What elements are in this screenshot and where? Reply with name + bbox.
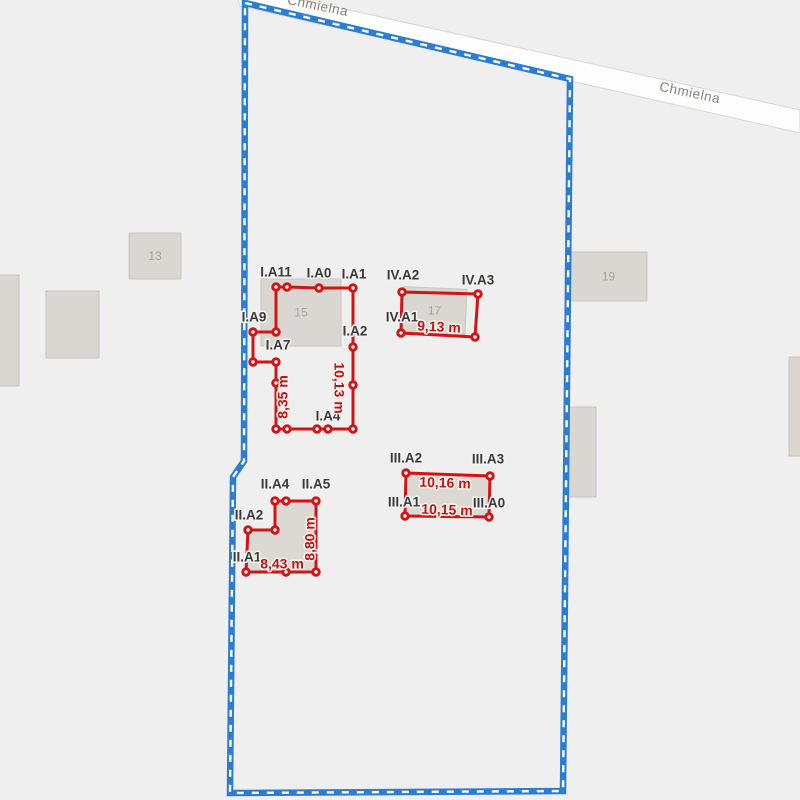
vertex-marker[interactable]: [402, 513, 408, 519]
map-svg: ChmielnaChmielna13151719I.A11I.A0I.A1I.A…: [0, 0, 800, 800]
vertex-marker[interactable]: [487, 473, 493, 479]
vertex-marker[interactable]: [273, 284, 279, 290]
vertex-marker[interactable]: [284, 426, 290, 432]
building-number: 15: [294, 306, 308, 320]
vertex-label: I.A11: [260, 265, 292, 280]
vertex-marker[interactable]: [273, 329, 279, 335]
vertex-label: I.A0: [307, 266, 332, 281]
vertex-label: IV.A1: [386, 310, 419, 325]
vertex-marker[interactable]: [250, 329, 256, 335]
vertex-label: III.A0: [473, 496, 505, 511]
vertex-marker[interactable]: [272, 527, 278, 533]
vertex-marker[interactable]: [399, 289, 405, 295]
vertex-label: III.A2: [390, 451, 422, 466]
building-footprint: [46, 291, 99, 358]
vertex-marker[interactable]: [472, 334, 478, 340]
vertex-marker[interactable]: [245, 527, 251, 533]
vertex-label: III.A1: [388, 495, 421, 510]
map-canvas[interactable]: ChmielnaChmielna13151719I.A11I.A0I.A1I.A…: [0, 0, 800, 800]
vertex-marker[interactable]: [350, 344, 356, 350]
vertex-marker[interactable]: [272, 498, 278, 504]
measurement-label: 8,35 m: [275, 375, 291, 419]
vertex-label: II.A2: [235, 508, 264, 523]
vertex-label: I.A9: [242, 310, 267, 325]
vertex-marker[interactable]: [243, 569, 249, 575]
measurement-label: 9,13 m: [417, 317, 461, 335]
vertex-marker[interactable]: [313, 498, 319, 504]
vertex-label: I.A1: [342, 267, 367, 282]
measurement-label: 10,13 m: [332, 362, 348, 413]
building-number: 13: [148, 249, 162, 263]
vertex-marker[interactable]: [283, 498, 289, 504]
vertex-marker[interactable]: [250, 359, 256, 365]
vertex-label: I.A2: [343, 324, 368, 339]
vertex-label: II.A1: [233, 550, 262, 565]
measurement-label: 8,80 m: [302, 517, 318, 561]
vertex-marker[interactable]: [313, 569, 319, 575]
vertex-marker[interactable]: [314, 426, 320, 432]
vertex-marker[interactable]: [273, 359, 279, 365]
vertex-marker[interactable]: [350, 426, 356, 432]
vertex-label: II.A5: [302, 477, 331, 492]
building-number: 19: [602, 270, 616, 284]
building-footprint: [567, 407, 596, 497]
vertex-marker[interactable]: [316, 285, 322, 291]
vertex-label: I.A7: [266, 338, 291, 353]
vertex-marker[interactable]: [273, 426, 279, 432]
vertex-label: III.A3: [472, 452, 505, 467]
measurement-label: 10,15 m: [421, 501, 473, 519]
measurement-label: 8,43 m: [260, 556, 304, 572]
vertex-marker[interactable]: [403, 470, 409, 476]
building-number: 17: [428, 303, 442, 318]
vertex-marker[interactable]: [350, 285, 356, 291]
building-footprint: [0, 275, 19, 386]
measurement-label: 10,16 m: [419, 474, 471, 492]
building-footprint: [789, 357, 800, 456]
vertex-marker[interactable]: [350, 382, 356, 388]
vertex-marker[interactable]: [325, 426, 331, 432]
vertex-label: IV.A2: [387, 268, 420, 283]
vertex-marker[interactable]: [398, 330, 404, 336]
vertex-marker[interactable]: [475, 291, 481, 297]
vertex-marker[interactable]: [486, 514, 492, 520]
vertex-label: II.A4: [261, 477, 290, 492]
vertex-marker[interactable]: [284, 284, 290, 290]
vertex-label: IV.A3: [462, 273, 495, 288]
